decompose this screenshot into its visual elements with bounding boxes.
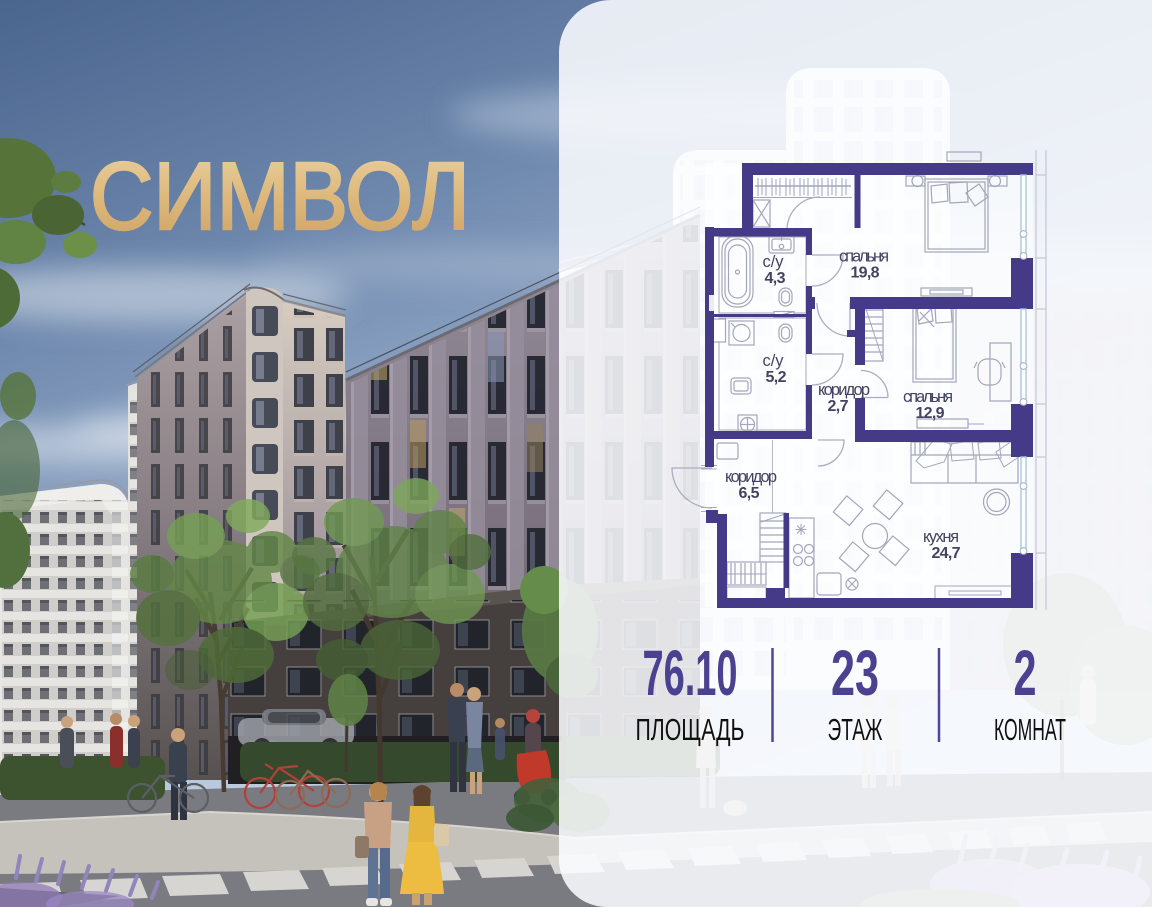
svg-text:6,5: 6,5: [739, 485, 760, 502]
svg-text:12,9: 12,9: [916, 405, 945, 422]
svg-text:СИМВОЛ: СИМВОЛ: [90, 143, 470, 250]
svg-text:с/у: с/у: [763, 253, 785, 271]
svg-text:коридор: коридор: [725, 468, 777, 486]
svg-text:коридор: коридор: [818, 381, 870, 399]
svg-text:24,7: 24,7: [932, 545, 961, 562]
svg-text:спальня: спальня: [903, 388, 953, 406]
svg-text:КОМНАТ: КОМНАТ: [994, 712, 1066, 747]
svg-text:кухня: кухня: [923, 528, 959, 546]
svg-text:ЭТАЖ: ЭТАЖ: [828, 712, 883, 747]
svg-text:ПЛОЩАДЬ: ПЛОЩАДЬ: [636, 712, 745, 747]
svg-text:спальня: спальня: [839, 248, 889, 266]
svg-text:5,2: 5,2: [766, 369, 787, 386]
svg-text:23: 23: [831, 637, 879, 709]
svg-text:с/у: с/у: [763, 352, 785, 370]
svg-text:4,3: 4,3: [765, 270, 786, 287]
svg-text:76.10: 76.10: [643, 637, 738, 709]
svg-text:2,7: 2,7: [828, 398, 849, 415]
svg-text:19,8: 19,8: [851, 265, 880, 282]
svg-text:2: 2: [1014, 637, 1037, 709]
